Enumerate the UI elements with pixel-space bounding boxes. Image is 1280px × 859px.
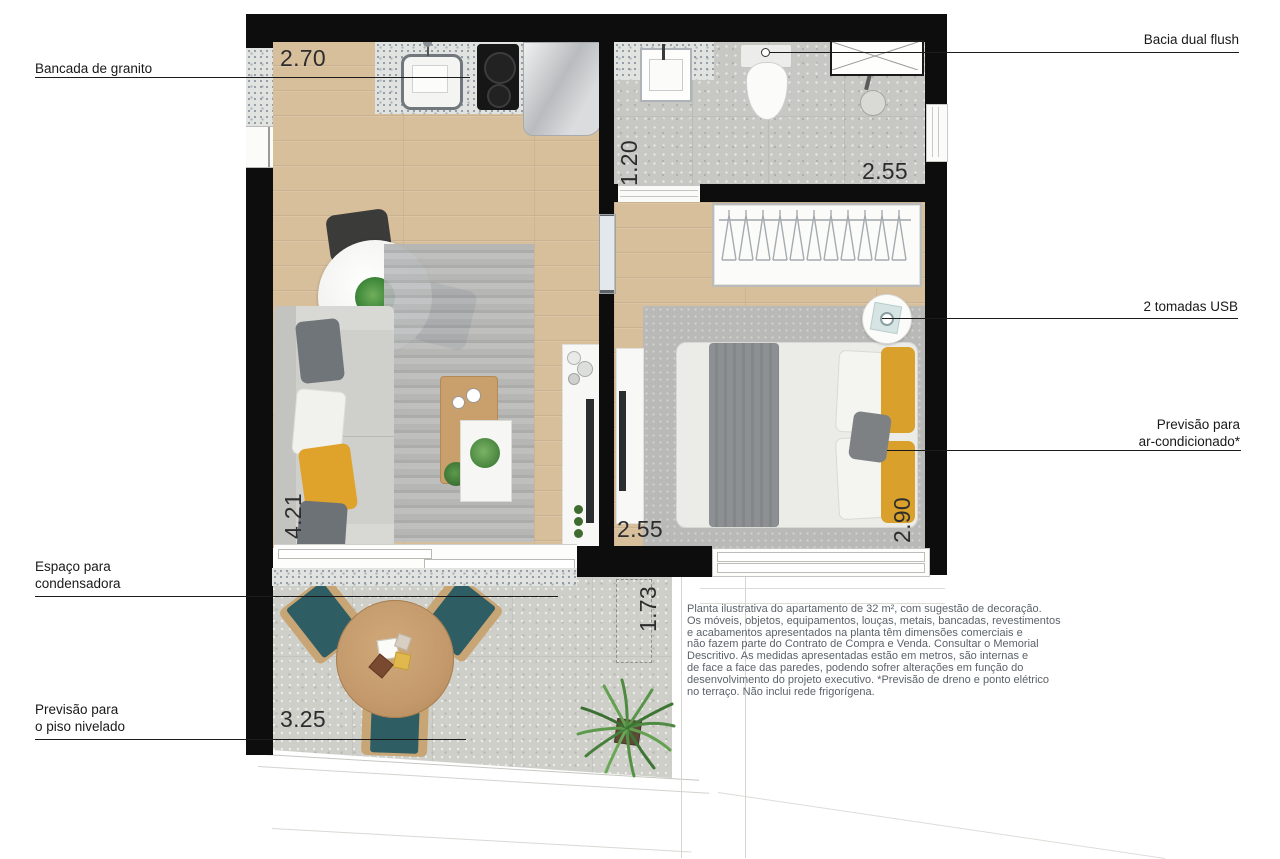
tv-panel-bedroom xyxy=(616,348,644,524)
bath-niche-window xyxy=(830,40,924,76)
bedroom-window xyxy=(712,548,930,577)
callout-piso-nivelado: Previsão para o piso nivelado xyxy=(35,701,125,735)
refrigerator xyxy=(523,42,602,136)
bedroom-glass-door xyxy=(599,214,616,294)
bed-throw xyxy=(709,343,779,527)
callout-condensadora-line1: Espaço para xyxy=(35,558,121,575)
coffee-table-cup xyxy=(452,396,465,409)
tv-bedroom xyxy=(619,391,626,491)
callout-bacia-dual-flush: Bacia dual flush xyxy=(1144,31,1239,48)
disclaimer-line: de face a face das paredes, podendo sofr… xyxy=(687,663,1061,675)
disclaimer-line: Os móveis, objetos, equipamentos, louças… xyxy=(687,616,1061,628)
dimension-bedroom-width: 2.55 xyxy=(617,516,663,543)
leader-bancada xyxy=(35,77,470,78)
leader-bacia xyxy=(768,52,1239,53)
terrace-tile-line xyxy=(512,577,513,778)
wall-divider-lower xyxy=(599,290,614,548)
dimension-kitchen-width: 2.70 xyxy=(280,45,326,72)
callout-tomadas-usb: 2 tomadas USB xyxy=(1143,298,1238,315)
left-wall-sill xyxy=(246,48,273,126)
callout-condensadora: Espaço para condensadora xyxy=(35,558,121,592)
shower-head xyxy=(860,90,886,116)
callout-condensadora-line2: condensadora xyxy=(35,575,121,592)
tv-console-living xyxy=(562,344,602,548)
left-wall-door xyxy=(246,126,273,168)
callout-ar-condicionado: Previsão para ar-condicionado* xyxy=(1139,416,1240,450)
sofa-pillow xyxy=(295,318,345,384)
palm-plant xyxy=(570,676,686,780)
niche-x-icon xyxy=(832,42,918,70)
slab-edge-line xyxy=(272,828,691,852)
console-decor xyxy=(577,361,593,377)
bed-cushion-gray xyxy=(848,411,892,464)
leader-tomadas xyxy=(882,318,1238,319)
bath-faucet-icon xyxy=(662,44,665,60)
leader-piso xyxy=(35,739,466,740)
threshold-line xyxy=(620,196,698,197)
disclaimer-line: no terraço. Não inclui rede frigorígena. xyxy=(687,687,1061,699)
dimension-terrace-width: 3.25 xyxy=(280,706,326,733)
callout-ar-line2: ar-condicionado* xyxy=(1139,433,1240,450)
nightstand-item xyxy=(880,312,894,326)
bed xyxy=(676,342,918,528)
cooktop xyxy=(477,44,519,110)
terrace-sliding-door xyxy=(274,544,577,571)
window-mullion xyxy=(938,107,939,157)
kitchen-sink-basin xyxy=(412,65,448,93)
wall-terrace-top xyxy=(577,546,712,577)
floor-plan-page: Bancada de granito Bacia dual flush 2 to… xyxy=(0,0,1280,859)
kitchen-sink xyxy=(401,54,463,110)
tv-living xyxy=(586,399,594,523)
window-pane xyxy=(717,563,925,573)
washbasin-bowl xyxy=(649,59,683,91)
console-plant-dot xyxy=(574,505,583,514)
callout-bancada-granito: Bancada de granito xyxy=(35,60,152,77)
cooktop-burner xyxy=(487,84,511,108)
slab-edge-line xyxy=(718,792,1165,859)
dimension-bedroom-length: 2.90 xyxy=(889,488,915,552)
callout-ar-line1: Previsão para xyxy=(1139,416,1240,433)
dimension-bath-width: 2.55 xyxy=(862,158,908,185)
wall-right xyxy=(925,14,947,575)
callout-piso-line2: o piso nivelado xyxy=(35,718,125,735)
dimension-living-length: 4.21 xyxy=(280,484,306,548)
terrace-sill xyxy=(272,568,577,586)
door-leaf-line xyxy=(268,127,270,167)
clothes-hangers-icon xyxy=(719,210,911,276)
dimension-bath-depth: 1.20 xyxy=(616,131,642,195)
cooktop-burner xyxy=(484,52,516,84)
console-plant-dot xyxy=(574,529,583,538)
side-table-plant xyxy=(470,438,500,468)
leader-ar-condicionado xyxy=(887,450,1241,451)
wall-top xyxy=(247,14,947,42)
door-pane xyxy=(278,549,432,559)
leader-bacia-marker xyxy=(761,48,770,57)
console-plant-dot xyxy=(574,517,583,526)
window-mullion xyxy=(932,107,933,157)
terrace-table-item xyxy=(393,652,412,671)
callout-piso-line1: Previsão para xyxy=(35,701,125,718)
leader-condensadora xyxy=(35,596,558,597)
dimension-terrace-depth: 1.73 xyxy=(635,577,661,641)
disclaimer-text: Planta ilustrativa do apartamento de 32 … xyxy=(687,604,1061,698)
window-pane xyxy=(717,552,925,562)
disclaimer-line: desenvolvimento do projeto executivo. *P… xyxy=(687,675,1061,687)
console-decor xyxy=(568,373,580,385)
wall-bath-bottom xyxy=(700,184,930,202)
washbasin xyxy=(640,48,692,102)
coffee-table-cup xyxy=(466,388,481,403)
bath-right-window xyxy=(926,104,948,162)
slab-line-right xyxy=(700,588,945,589)
